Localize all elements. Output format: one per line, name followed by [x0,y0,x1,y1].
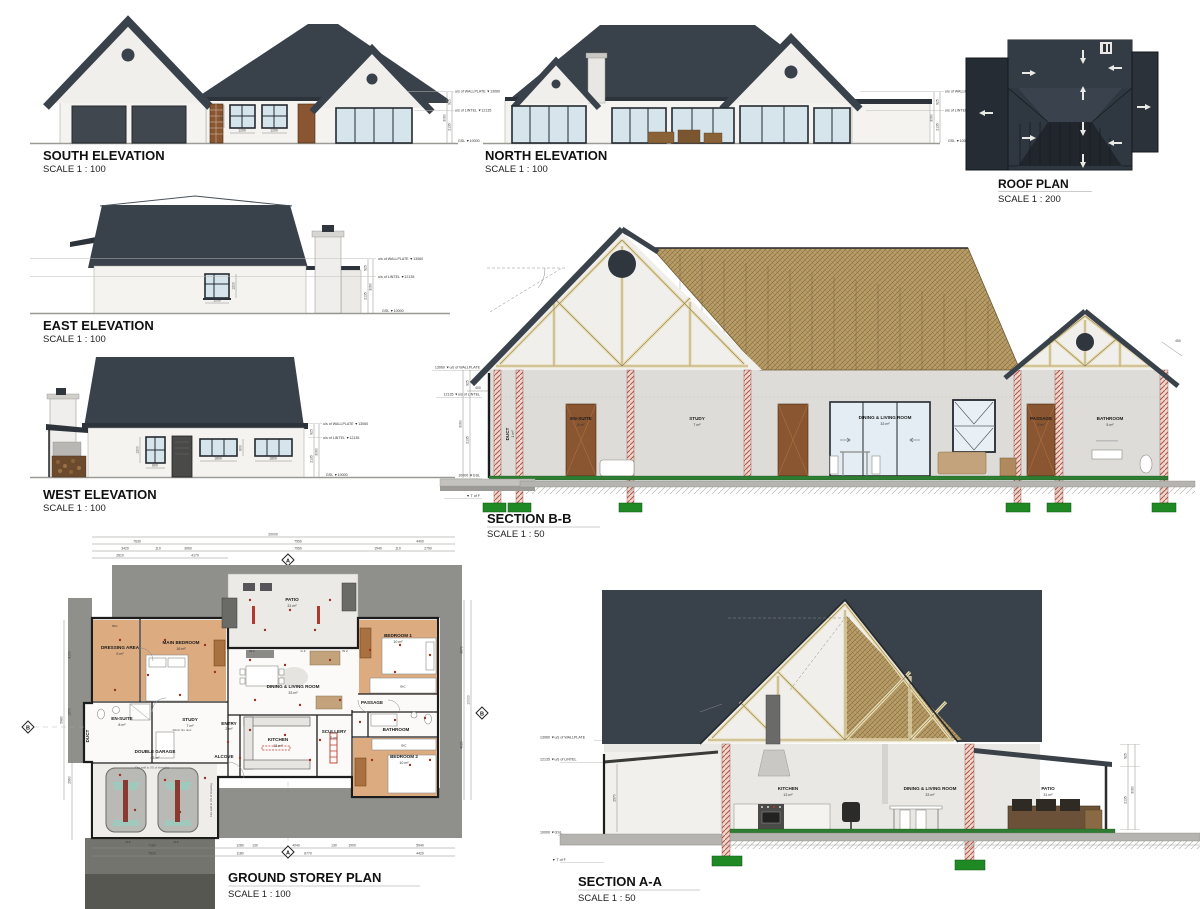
dim: 2135 [364,292,368,300]
svg-text:KITCHEN: KITCHEN [778,786,799,791]
svg-text:5980: 5980 [60,716,64,724]
bath [371,714,397,726]
svg-text:5 m²: 5 m² [1106,423,1114,427]
dim: 450 [1175,339,1181,343]
dining-table [246,666,278,686]
svg-text:9 m²: 9 m² [116,652,124,656]
svg-text:DOUBLE GARAGE: DOUBLE GARAGE [135,749,176,754]
svg-text:5 m²: 5 m² [1037,423,1045,427]
svg-text:10 m²: 10 m² [399,761,409,765]
level-gsl: GSL ▼10000 [458,139,480,143]
dim: 2135 [466,436,470,444]
level-gsl: GSL ▼10000 [382,309,404,313]
svg-text:1 m²: 1 m² [511,430,515,438]
dim: 925 [466,380,470,386]
drawing-title: ROOF PLAN [998,177,1069,191]
svg-text:5940: 5940 [416,844,424,848]
level-lintel: 12135 ▼u/s of LINTEL [540,758,577,762]
left-gable-face [52,23,204,103]
svg-text:925: 925 [1124,753,1128,759]
svg-text:PATIO: PATIO [1041,786,1055,791]
right-wing-wall [852,103,930,143]
roof-right-wing [1132,52,1158,152]
svg-text:KITCHEN: KITCHEN [268,737,289,742]
svg-text:8 m²: 8 m² [118,723,126,727]
level-gsl: 10000 ▼GSL [458,474,480,478]
svg-text:PATIO: PATIO [285,597,299,602]
drawing-title: SOUTH ELEVATION [43,148,165,163]
braai [222,598,237,628]
bed2 [388,755,436,793]
dim: 2135 [310,455,314,463]
level-lintel: u/s of LINTEL ▼12135 [455,109,491,113]
dim: 925 [936,99,940,105]
drawing-title: GROUND STOREY PLAN [228,870,381,885]
svg-text:A: A [286,851,290,857]
vanity [1092,450,1122,459]
level-wallplate: u/s of WALLPLATE ▼13060 [378,257,423,261]
dim: 1200 [270,129,278,133]
west-elevation: 1200 600 1800 600 1800 925 2135 3060 u/s… [30,357,455,514]
svg-text:33 m²: 33 m² [288,691,298,695]
svg-text:7950: 7950 [294,547,302,551]
svg-text:4170: 4170 [191,554,199,558]
svg-text:2135: 2135 [1124,796,1128,804]
svg-text:1180: 1180 [236,852,243,856]
room-ensuite: EN-SUITE [570,416,591,421]
dim: 600 [239,445,243,451]
svg-text:7 m²: 7 m² [693,423,701,427]
drawing-scale: SCALE 1 : 50 [578,893,636,904]
svg-text:31 m²: 31 m² [1043,793,1053,797]
drawing-title: EAST ELEVATION [43,318,154,333]
svg-text:31 m²: 31 m² [287,604,297,608]
dim: 600 [152,464,158,468]
window-1 [200,439,237,456]
section-b-b: 13060 ▼u/s of WALLPLATE 12135 ▼u/s of LI… [432,229,1195,540]
level-wallplate: 13060 ▼u/s of WALLPLATE [435,366,481,370]
roof-plan: ROOF PLAN SCALE 1 : 200 [966,40,1158,205]
svg-text:BIC: BIC [400,685,406,689]
flue-duct [766,695,780,744]
oven-window [762,812,780,823]
svg-text:3420: 3420 [121,547,129,551]
svg-text:130: 130 [331,844,337,848]
svg-text:BEDROOM 1: BEDROOM 1 [384,633,412,638]
ground-strip [730,833,1200,841]
dim: 2135 [448,123,452,131]
gable-vent-icon [608,250,636,278]
svg-text:STUDY: STUDY [182,717,198,722]
architectural-drawing-sheet: 1200 1200 1200 925 2135 3060 u/s of WALL… [0,0,1200,909]
svg-text:2810: 2810 [116,554,124,558]
svg-text:130: 130 [252,844,258,848]
drawing-scale: SCALE 1 : 200 [998,194,1061,205]
svg-text:W 2: W 2 [342,649,348,653]
svg-text:4400: 4400 [416,540,424,544]
level-wallplate: u/s of WALLPLATE ▼13060 [455,90,500,94]
svg-text:BIC: BIC [401,744,407,748]
level-wallplate: 13060 ▼u/s of WALLPLATE [540,736,586,740]
svg-text:D 3: D 3 [174,840,179,844]
svg-text:BATHROOM: BATHROOM [383,727,410,732]
dim: 1200 [232,282,236,290]
dim: 1200 [213,299,221,303]
section-marker-b-right: B [476,707,488,719]
porch-screen [53,442,81,456]
svg-text:1900: 1900 [348,844,356,848]
drawing-scale: SCALE 1 : 100 [485,164,548,175]
ridge-edge [622,232,968,248]
dim: 3060 [443,114,447,122]
svg-text:B: B [480,712,484,718]
gable-vent-icon [785,66,798,79]
ground-strip [520,481,1195,487]
svg-text:B: B [26,726,30,732]
top-dimensions: 20000 7630 7950 4400 3420 110 3060 7950 … [92,533,455,559]
svg-text:13 m²: 13 m² [273,744,283,748]
room-bathroom: BATHROOM [1097,416,1124,421]
svg-text:DINING & LIVING ROOM: DINING & LIVING ROOM [267,684,320,689]
svg-text:1280: 1280 [236,844,244,848]
ridge-line [100,196,292,206]
window-2 [255,439,292,456]
sofa2 [316,696,342,709]
svg-text:7180: 7180 [148,844,156,848]
firewood-stack [52,456,86,477]
level-gsl: GSL ▼10000 [326,473,348,477]
chimney-cap [56,388,66,395]
svg-text:4420: 4420 [416,852,424,856]
svg-text:30min fire door: 30min fire door [172,728,191,732]
svg-text:G 4: G 4 [301,649,306,653]
room-study: STUDY [689,416,705,421]
sofa1 [310,651,340,665]
level-gsl: 10000 ▼GSL [540,831,562,835]
drawing-title: SECTION A-A [578,874,663,889]
svg-text:33 m²: 33 m² [925,793,935,797]
svg-text:5 m²: 5 m² [330,736,338,740]
dim: 1200 [136,446,140,454]
main-wall [94,266,306,313]
svg-text:Fire wall to US of sheeting: Fire wall to US of sheeting [209,783,213,817]
svg-text:4040: 4040 [292,844,300,848]
roof-top-wing [1008,40,1132,88]
svg-text:16 m²: 16 m² [176,647,186,651]
ground-storey-plan: 20000 7630 7950 4400 3420 110 3060 7950 … [22,533,488,909]
svg-text:1940: 1940 [374,547,382,551]
dim: 1800 [269,457,277,461]
svg-text:EN-SUITE: EN-SUITE [111,716,132,721]
svg-text:ENTRY: ENTRY [221,721,236,726]
svg-text:110: 110 [395,547,401,551]
drawing-title: SECTION B-B [487,511,572,526]
dim: 3060 [315,448,319,456]
south-elevation: 1200 1200 1200 925 2135 3060 u/s of WALL… [30,21,500,175]
right-eave-band [850,99,932,104]
svg-text:20000: 20000 [268,533,278,537]
gable-vent-icon [122,49,135,62]
svg-text:DRESSING AREA: DRESSING AREA [101,645,140,650]
svg-text:ALCOVE: ALCOVE [214,754,233,759]
eave-band [206,97,336,101]
basin [113,707,120,714]
dim: 400 [475,386,481,390]
side-table [1085,810,1102,830]
kitchen-dining-wall [882,744,888,804]
garage-slab [560,834,730,845]
svg-text:1570: 1570 [68,708,72,716]
dim: 1200 [220,113,224,121]
svg-text:MAIN BEDROOM: MAIN BEDROOM [162,640,199,645]
level-lintel: u/s of LINTEL ▼12135 [378,275,414,279]
svg-text:DINING & LIVING ROOM: DINING & LIVING ROOM [904,786,957,791]
drawing-scale: SCALE 1 : 100 [43,503,106,514]
level-lintel: u/s of LINTEL ▼12135 [323,436,359,440]
floor-slab [489,476,1168,480]
section-marker-a-top: A [282,554,294,566]
window [205,274,229,298]
svg-text:PASSAGE: PASSAGE [361,700,383,705]
drawing-scale: SCALE 1 : 100 [43,334,106,345]
garage: 2570 [560,752,730,845]
east-elevation: 1200 1200 925 2135 3060 u/s of WALLPLATE… [30,196,450,345]
svg-text:W 2: W 2 [249,649,255,653]
svg-text:3670: 3670 [460,646,464,654]
svg-text:4170: 4170 [68,651,72,659]
svg-text:7950: 7950 [294,540,302,544]
room-dining: DINING & LIVING ROOM [859,415,912,420]
north-elevation: 925 2135 3060 u/s of WALLPLATE ▼13060 u/… [483,25,990,175]
svg-text:A: A [286,559,290,565]
dim: 1200 [238,129,246,133]
bathtub [600,460,634,476]
drawing-title: NORTH ELEVATION [485,148,607,163]
svg-text:BEDROOM 2: BEDROOM 2 [390,754,418,759]
drawing-title: WEST ELEVATION [43,487,157,502]
dim: 925 [448,99,452,105]
section-a-a: 13060 ▼u/s of WALLPLATE 12135 ▼u/s of LI… [540,590,1200,904]
garage-door-left [72,106,126,143]
main-roof [84,357,304,427]
dim: 3060 [459,420,463,428]
svg-text:6770: 6770 [304,852,312,856]
brick-pier-1 [722,744,730,856]
garage-door-right [132,106,186,143]
level-wallplate: u/s of WALLPLATE ▼13060 [323,422,368,426]
gable-vent-icon [1076,333,1094,351]
room-duct: DUCT [505,427,510,440]
office-chair [842,802,860,822]
dim: 1800 [214,457,222,461]
svg-text:2960: 2960 [68,776,72,784]
svg-text:4020: 4020 [460,741,464,749]
right-dimensions: 925 2135 3060 [1120,744,1140,830]
floor-slab [730,829,1115,833]
svg-text:3060: 3060 [184,547,192,551]
sofa [938,452,986,474]
svg-text:SCULLERY: SCULLERY [322,729,347,734]
svg-text:33 m²: 33 m² [880,422,890,426]
desk [156,732,174,758]
dim: 2135 [936,123,940,131]
dim: 925 [310,429,314,435]
svg-text:8 m²: 8 m² [577,423,585,427]
svg-text:3060: 3060 [1131,786,1135,794]
svg-text:7830: 7830 [148,852,156,856]
room-passage: PASSAGE [1030,416,1052,421]
level-lintel: 12135 ▼u/s of LINTEL [443,393,480,397]
cabinet [1000,458,1016,476]
svg-text:13 m²: 13 m² [783,793,793,797]
wardrobe [214,640,225,666]
chimney [315,236,341,313]
garage-interior [604,752,720,834]
dressing-floor [93,620,139,701]
kitchen-counter-top [244,717,310,726]
svg-text:2790: 2790 [424,547,432,551]
dim: 3060 [930,114,934,122]
drawing-scale: SCALE 1 : 100 [43,164,106,175]
svg-text:DUCT: DUCT [85,729,90,742]
dim: 2570 [613,794,617,802]
drawing-scale: SCALE 1 : 50 [487,529,545,540]
toilet [98,709,105,719]
dim: 925 [364,265,368,271]
gable-vent-icon [367,74,378,85]
toilet [1140,455,1152,473]
svg-text:D 3: D 3 [126,840,131,844]
floor-foundation [440,476,1195,512]
gable-vent-icon [552,80,561,89]
svg-text:2 m²: 2 m² [225,727,233,731]
drawing-scale: SCALE 1 : 100 [228,889,291,900]
dim: 400 [709,699,715,703]
dim: 450 [987,700,993,704]
svg-text:Fire wall to US of sheeting: Fire wall to US of sheeting [135,766,169,770]
dining-table [890,806,942,809]
svg-text:10 m²: 10 m² [393,640,403,644]
svg-text:7630: 7630 [133,540,141,544]
level-tof: ▼ T of F [552,858,567,862]
level-tof: ▼ T of F [466,494,481,498]
svg-text:BIC: BIC [112,624,118,628]
chimney-cap [322,225,334,232]
svg-text:10000: 10000 [467,695,471,705]
sliding-doors-4 [740,106,808,143]
svg-text:43 m²: 43 m² [150,756,160,760]
svg-text:110: 110 [155,547,161,551]
drawing-canvas: 1200 1200 1200 925 2135 3060 u/s of WALL… [0,0,1200,909]
dim: 3060 [369,283,373,291]
